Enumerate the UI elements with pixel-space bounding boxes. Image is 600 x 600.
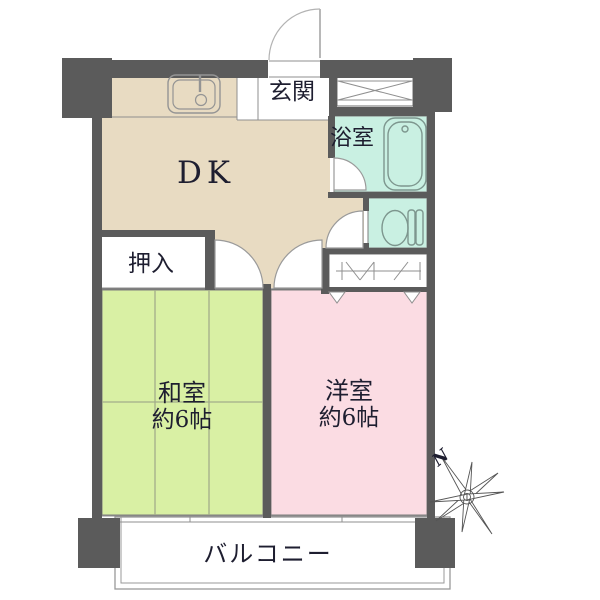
wall-above-bathroom: [329, 107, 435, 116]
wall-oshiire-right: [205, 230, 215, 290]
wall-oshiire-top: [92, 230, 215, 237]
floor-plan-page: N DK 玄関 浴室 押入 和室 約6帖 洋室 約6帖 バルコニー: [0, 0, 600, 600]
entrance-door-arc: [269, 9, 320, 60]
wall-room-divider: [263, 284, 271, 518]
youshitsu-size-label: 約6帖: [319, 405, 380, 431]
entrance-door: [269, 9, 320, 79]
bathroom-label: 浴室: [330, 126, 374, 151]
wall-pillar-top-right: [413, 58, 452, 112]
closet-hanger: [329, 254, 427, 288]
oshiire-label: 押入: [128, 251, 174, 277]
wall-pillar-bottom-right: [415, 518, 455, 568]
wall-top-left-span: [62, 60, 268, 78]
wall-left: [92, 118, 102, 518]
wall-pillar-bottom-left: [78, 518, 120, 568]
wall-toilet-left-bottom: [363, 243, 369, 248]
balcony-label: バルコニー: [203, 540, 333, 568]
meter-box: [337, 75, 413, 106]
youshitsu-label: 洋室: [325, 377, 373, 405]
dk-label: DK: [177, 155, 235, 191]
washitsu-label: 和室: [158, 379, 206, 407]
wall-toilet-left-top: [363, 198, 369, 211]
washitsu-size-label: 約6帖: [152, 407, 213, 433]
genkan-label: 玄関: [269, 79, 315, 105]
wall-hall-closet: [321, 248, 435, 254]
wall-youshitsu-top: [321, 287, 435, 292]
toilet-floor: [368, 198, 427, 248]
wall-bathroom-bottom: [328, 192, 435, 198]
floor-plan: N DK 玄関 浴室 押入 和室 約6帖 洋室 約6帖 バルコニー: [0, 0, 600, 600]
